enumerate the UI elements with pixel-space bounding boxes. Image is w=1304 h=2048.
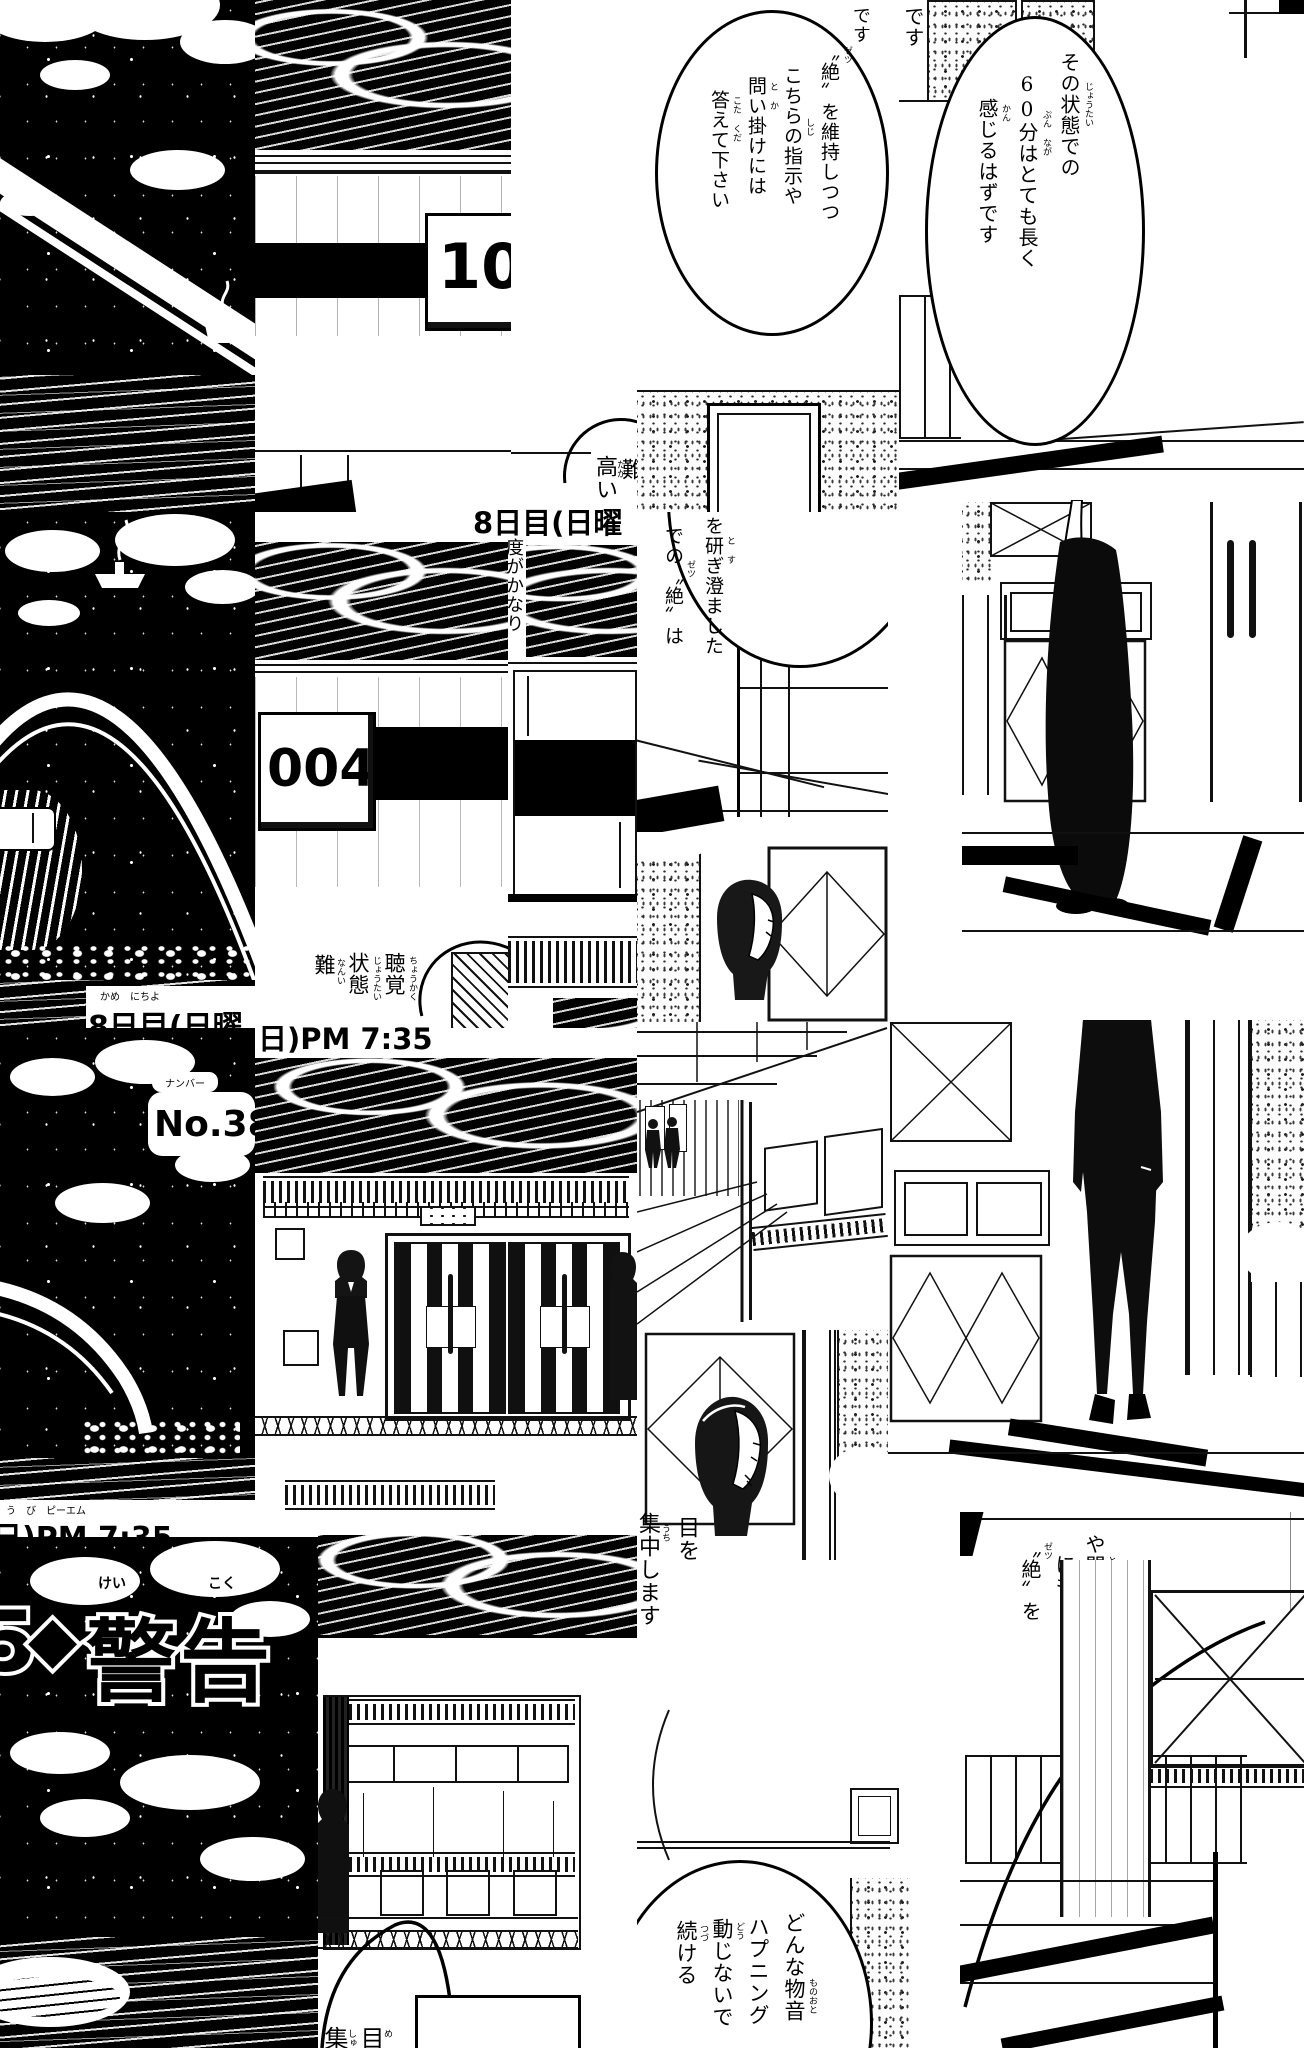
bubble-line: を研ぎ澄ました	[703, 516, 722, 656]
title-diamond: ◆	[28, 1603, 77, 1677]
panel-no38-night: ナンバー No.38 う び ピーエム 日)PM 7:35	[0, 1028, 255, 1537]
wall-black-stripe	[255, 243, 430, 298]
floor-line	[960, 1982, 1215, 1984]
text-fragment-takai: 高い	[593, 455, 615, 501]
chapter-number-tab-text: ナンバー	[165, 1079, 205, 1090]
slat-wall	[1250, 1282, 1304, 1377]
molding-curve	[637, 1710, 671, 1860]
transom	[976, 1182, 1042, 1236]
wall-line	[255, 170, 511, 174]
bubble-line: どんな物音	[783, 1912, 804, 2022]
bubble-line: での〝絶〟は	[663, 526, 682, 646]
molding-band	[1150, 1764, 1304, 1788]
furigana: じょうたい	[1083, 82, 1092, 127]
furigana: ゼツ	[685, 560, 694, 578]
suit-figure-silhouette	[1043, 942, 1193, 1472]
ornate-band	[325, 1699, 575, 1725]
door-handle	[1227, 540, 1234, 638]
cylinder-object	[0, 807, 56, 851]
furigana: じょうたい	[371, 956, 380, 1001]
overlay-shuchu-text: 集中します	[636, 1512, 658, 1627]
furigana-takai: たか	[615, 460, 624, 478]
tatami-stripe	[1214, 835, 1263, 932]
speckle-strip	[962, 502, 992, 582]
furigana: ゼツ	[1042, 1542, 1051, 1560]
overlay-shuchu-furigana: うち	[660, 1524, 669, 1542]
furigana: と す	[725, 536, 734, 564]
sign-edge	[428, 322, 511, 328]
wave-art	[255, 542, 508, 660]
panel-night-sky-beam	[0, 0, 255, 512]
ship-silhouette	[195, 285, 255, 355]
sign-edge	[368, 715, 373, 828]
date-band-furigana: かめ にちよ	[100, 988, 160, 1003]
door-leaf	[508, 1242, 620, 1414]
floor-line	[962, 832, 1304, 834]
title-keikoku: 警告	[86, 1589, 274, 1719]
bubble-line: 答えて下さい	[709, 90, 728, 210]
ocean-streaks	[0, 375, 255, 512]
panel-window-room: 目 め 集 しゅ	[318, 1535, 637, 2048]
panel-standing-figure	[962, 500, 1304, 942]
wave-art	[255, 0, 511, 150]
arc-splash-art	[0, 1178, 255, 1398]
stair-hatch-art	[451, 952, 508, 1028]
wood-pillar	[1060, 1560, 1151, 1917]
furigana: どう	[734, 1922, 743, 1940]
time-band-text-clipped: 日)PM 7:35	[0, 1513, 173, 1537]
furigana: なんい	[335, 958, 344, 985]
furigana: ぷん なが	[1041, 110, 1050, 156]
bubble-line: 感じるはずです	[977, 98, 997, 245]
tatami-black-bar	[962, 846, 1078, 865]
chapter-number-tab: ナンバー	[152, 1072, 218, 1092]
entrance-doors	[385, 1233, 631, 1421]
panel-keikoku-title: けい こく 5 ◆ 警告	[0, 1537, 318, 2048]
wall-line	[508, 662, 637, 664]
wall-corner	[1244, 0, 1247, 58]
transom-divider	[393, 1747, 395, 1781]
threshold-band	[255, 1416, 637, 1436]
room-sign-10: 10	[425, 213, 511, 331]
furigana: かん	[1000, 104, 1009, 122]
cloud	[10, 1732, 110, 1774]
cabinet-x-brace	[1153, 1593, 1304, 1765]
cloud	[120, 1755, 260, 1810]
panel-bubble-zetsu-keep: 〝絶〟を維持しつつ ゼツ こちらの指示や しじ 問い掛けには と か 答えて下さ…	[637, 0, 899, 512]
door-frame	[850, 1788, 899, 1844]
dark-fragment	[553, 998, 637, 1028]
panel-woman-closeup: 目を	[637, 1325, 888, 1560]
cloud	[40, 60, 110, 90]
panel-room-sign-10: 10	[255, 0, 511, 512]
floor-line	[899, 440, 1304, 442]
bubble-line: 続ける	[675, 1920, 696, 1986]
cloud	[130, 150, 225, 190]
frame-line	[527, 676, 529, 736]
floor-border-line	[1213, 1852, 1218, 2048]
panel-black-suit-figure	[888, 942, 1304, 1512]
thick-line	[508, 894, 637, 902]
panel-hotel-entrance	[255, 1028, 637, 1535]
cabinet	[1150, 1590, 1304, 1768]
wall-line	[255, 664, 508, 666]
door-crossbar	[740, 687, 888, 689]
white-box-panel	[415, 1995, 581, 2048]
molding-line	[637, 1841, 890, 1843]
bubble-line: 〝絶〟を維持しつつ	[819, 42, 838, 222]
text-fragment-desu: です	[851, 6, 869, 44]
text-jotai: 状態	[347, 952, 368, 996]
furigana: ものおと	[807, 1978, 816, 2014]
wall-sign-frame	[513, 670, 637, 896]
pillar-slats	[1185, 1020, 1251, 1375]
small-figure	[663, 1116, 681, 1170]
bubble-line: 問い掛けには	[746, 76, 765, 196]
furigana: め	[382, 2029, 391, 2038]
wall-line	[255, 162, 511, 164]
wave-art	[526, 545, 637, 657]
woman-head-profile	[705, 874, 795, 1022]
bubble-line: 動じないで	[711, 1918, 732, 2028]
furigana: ちょうかく	[407, 956, 416, 1001]
transom-row	[894, 1170, 1050, 1246]
furigana: しゅ	[346, 2029, 355, 2047]
speckle-curtain	[1250, 1020, 1304, 1255]
panel-wall-molding-strip: 度がかなり	[508, 512, 637, 1028]
cloud	[200, 1837, 305, 1881]
date-band: かめ にちよ 8日目(日曜	[86, 986, 255, 1028]
text-chokaku: 聴覚	[383, 952, 404, 996]
wall-black-stripe	[375, 727, 508, 800]
door-frame	[707, 403, 821, 512]
wave-art	[318, 1535, 637, 1638]
text-nan: 難	[313, 954, 334, 976]
cloud	[10, 1058, 95, 1096]
text-fragment-me: 目	[358, 2026, 382, 2048]
pillar	[802, 1330, 836, 1560]
furigana: こた くだ	[731, 96, 740, 142]
sign-edge	[261, 822, 373, 828]
bubble-line: こちらの指示や	[782, 66, 801, 206]
door-inner-frame	[717, 413, 811, 512]
transom-divider	[455, 1747, 457, 1781]
panel-white-fragment: 難 高い たか	[511, 0, 637, 512]
furigana: と か	[768, 82, 777, 110]
molding-line	[637, 1847, 890, 1849]
thin-spike	[433, 1787, 434, 1857]
panel-bubble-donna: どんな物音 ものおと ハプニング 動じないで どう 続ける つづ	[637, 1560, 960, 2048]
dark-wedge	[255, 480, 357, 512]
bubble-line: その状態での	[1059, 52, 1079, 178]
thin-spike	[503, 1791, 504, 1857]
wall-line	[255, 671, 508, 673]
suited-guard-partial	[607, 1250, 637, 1402]
panel-room-sign-004: 004 聴覚 ちょうかく 状態 じょうたい 難 なんい	[255, 512, 508, 1028]
wall-panel	[824, 1128, 883, 1216]
right-wall-panels	[749, 1102, 887, 1320]
furigana: つづ	[698, 1924, 707, 1942]
thin-spike	[553, 1801, 554, 1857]
overlay-date-text: 8日目(日曜	[473, 500, 622, 542]
pillar-wedge	[960, 1512, 983, 1556]
wall-panel-frame	[275, 1228, 305, 1260]
floor-diagonal	[1049, 421, 1304, 441]
wall-panel	[764, 1140, 818, 1212]
suited-guard	[327, 1248, 375, 1400]
arch-cutout	[829, 1447, 888, 1505]
door-x-panel	[890, 1022, 1012, 1142]
room-sign-10-number: 10	[438, 230, 511, 303]
wall-panel-frame	[283, 1330, 319, 1366]
door-frame-inner	[858, 1796, 891, 1836]
panel-bubble-60min: です その状態での じょうたい 60分はとても長く ぷん なが 感じるはずです …	[899, 0, 1304, 500]
arch-cutout	[637, 832, 720, 860]
furigana: しじ	[804, 118, 813, 136]
dark-wedge	[637, 786, 724, 832]
transom	[904, 1182, 968, 1236]
small-figure	[643, 1118, 663, 1170]
panel-tatami-hall: や問い掛け と か にも 〝絶〟を ゼツ	[960, 1512, 1304, 2048]
text-fragment-shu: 集	[322, 2026, 346, 2048]
text-fragment-dokanari: 度がかなり	[508, 538, 522, 633]
wave-art	[255, 1058, 637, 1173]
time-band: う び ピーエム 日)PM 7:35	[0, 1500, 255, 1537]
door-leaf	[394, 1242, 506, 1414]
manga-collage-page: 10 難 高い たか 〝絶〟を維持しつつ ゼツ こちらの指示や しじ 問い掛けに…	[0, 0, 1304, 2048]
door-handle	[562, 1274, 567, 1354]
molding-band	[508, 936, 637, 988]
transom-row	[335, 1745, 569, 1783]
wall-black-stripe	[515, 740, 635, 816]
panel-bubble-togisumashita: を研ぎ澄ました と す での〝絶〟は ゼツ	[637, 512, 888, 832]
panel-woman-at-door	[637, 832, 888, 1022]
cylinder-line	[32, 813, 34, 843]
cloud	[180, 20, 255, 64]
door-handle	[1249, 540, 1256, 638]
panel-receding-corridor	[637, 1022, 888, 1325]
right-door-leaf	[1210, 502, 1302, 802]
frame-corner	[1279, 0, 1304, 14]
overlay-time-text: 日)PM 7:35	[258, 1016, 433, 1058]
chapter-number-label: No.38	[148, 1092, 255, 1156]
floor-line	[960, 1880, 1215, 1882]
transom-divider	[517, 1747, 519, 1781]
door-plaque	[420, 1206, 476, 1226]
bubble-line: 60分はとても長く	[1017, 72, 1037, 269]
floor-line	[962, 930, 1304, 932]
floor-line	[888, 1452, 1304, 1454]
frame-line	[619, 822, 621, 888]
wall-line	[255, 155, 511, 157]
date-band-text-clipped: 8日目(日曜	[88, 1002, 243, 1028]
wall-line	[255, 450, 511, 452]
top-line	[970, 1518, 1304, 1520]
text-fragment-desu: です	[903, 6, 923, 48]
room-sign-004-number: 004	[267, 739, 376, 799]
bubble-line: ハプニング	[747, 1916, 768, 2026]
molding-band	[285, 1480, 495, 1510]
room-sign-004: 004	[258, 712, 376, 831]
speech-bubble	[655, 10, 889, 336]
molding-diagonal	[751, 1213, 888, 1251]
thin-spike	[363, 1793, 364, 1857]
bubble-mass	[667, 512, 888, 668]
panel-bridge-arc-night: かめ にちよ 8日目(日曜	[0, 512, 255, 1028]
furigana: ゼツ	[842, 46, 851, 64]
speckle-pillar	[637, 840, 701, 1022]
page-edge-line	[1290, 1512, 1291, 1612]
cloud	[40, 1799, 130, 1837]
chapter-number-text: No.38	[154, 1104, 255, 1145]
diamond-door-panels	[890, 1255, 1042, 1422]
text-fragment-metsu: 目を	[675, 1516, 697, 1560]
door-handle	[448, 1274, 453, 1354]
